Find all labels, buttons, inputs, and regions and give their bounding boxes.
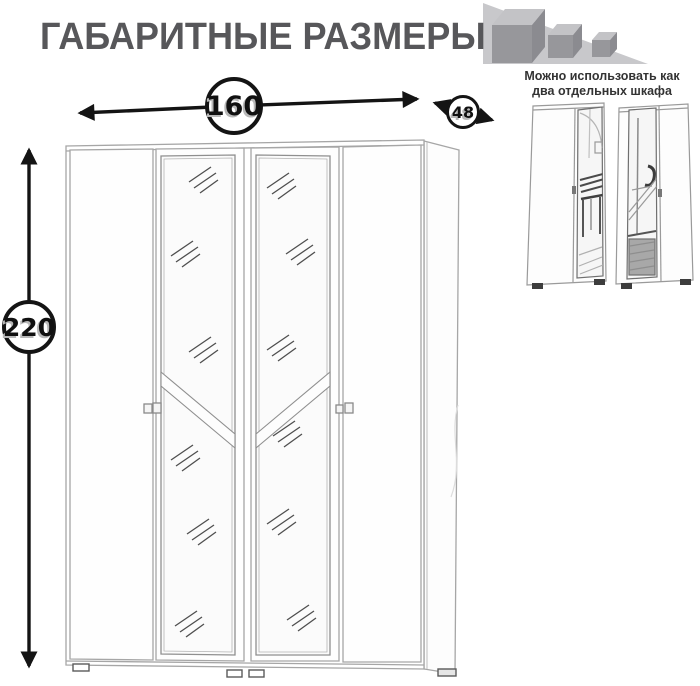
wardrobe-door-4 <box>343 145 421 662</box>
separate-wardrobe-right <box>616 104 693 289</box>
door-handle-left <box>144 403 161 413</box>
width-dimension-badge: 160 <box>205 77 263 135</box>
mini-door-handle <box>658 189 662 197</box>
mirror-panel-left <box>161 155 235 655</box>
dimension-diagram: ГАБАРИТНЫЕ РАЗМЕРЫ Можно использовать ка… <box>0 0 700 686</box>
mirror-panel-right <box>256 155 330 655</box>
usage-note: Можно использовать как два отдельных шка… <box>506 69 698 99</box>
usage-note-line-1: Можно использовать как <box>506 69 698 84</box>
page-title: ГАБАРИТНЫЕ РАЗМЕРЫ <box>40 16 486 59</box>
shrinking-cubes-icon <box>483 3 648 64</box>
wardrobe-door-1 <box>70 149 153 660</box>
door-handle-right <box>336 403 353 413</box>
main-wardrobe-drawing <box>66 140 459 677</box>
cube-small-icon <box>592 32 617 57</box>
cube-medium-icon <box>548 24 582 58</box>
height-dimension-badge: 220 <box>2 300 56 354</box>
depth-dimension-badge: 48 <box>446 95 480 129</box>
cube-large-icon <box>492 9 545 63</box>
mini-door-handle <box>572 186 576 194</box>
wardrobe-side-panel <box>424 141 459 674</box>
separate-wardrobe-left <box>527 103 606 289</box>
usage-note-line-2: два отдельных шкафа <box>506 84 698 99</box>
wardrobe-diagram-canvas <box>0 0 700 686</box>
